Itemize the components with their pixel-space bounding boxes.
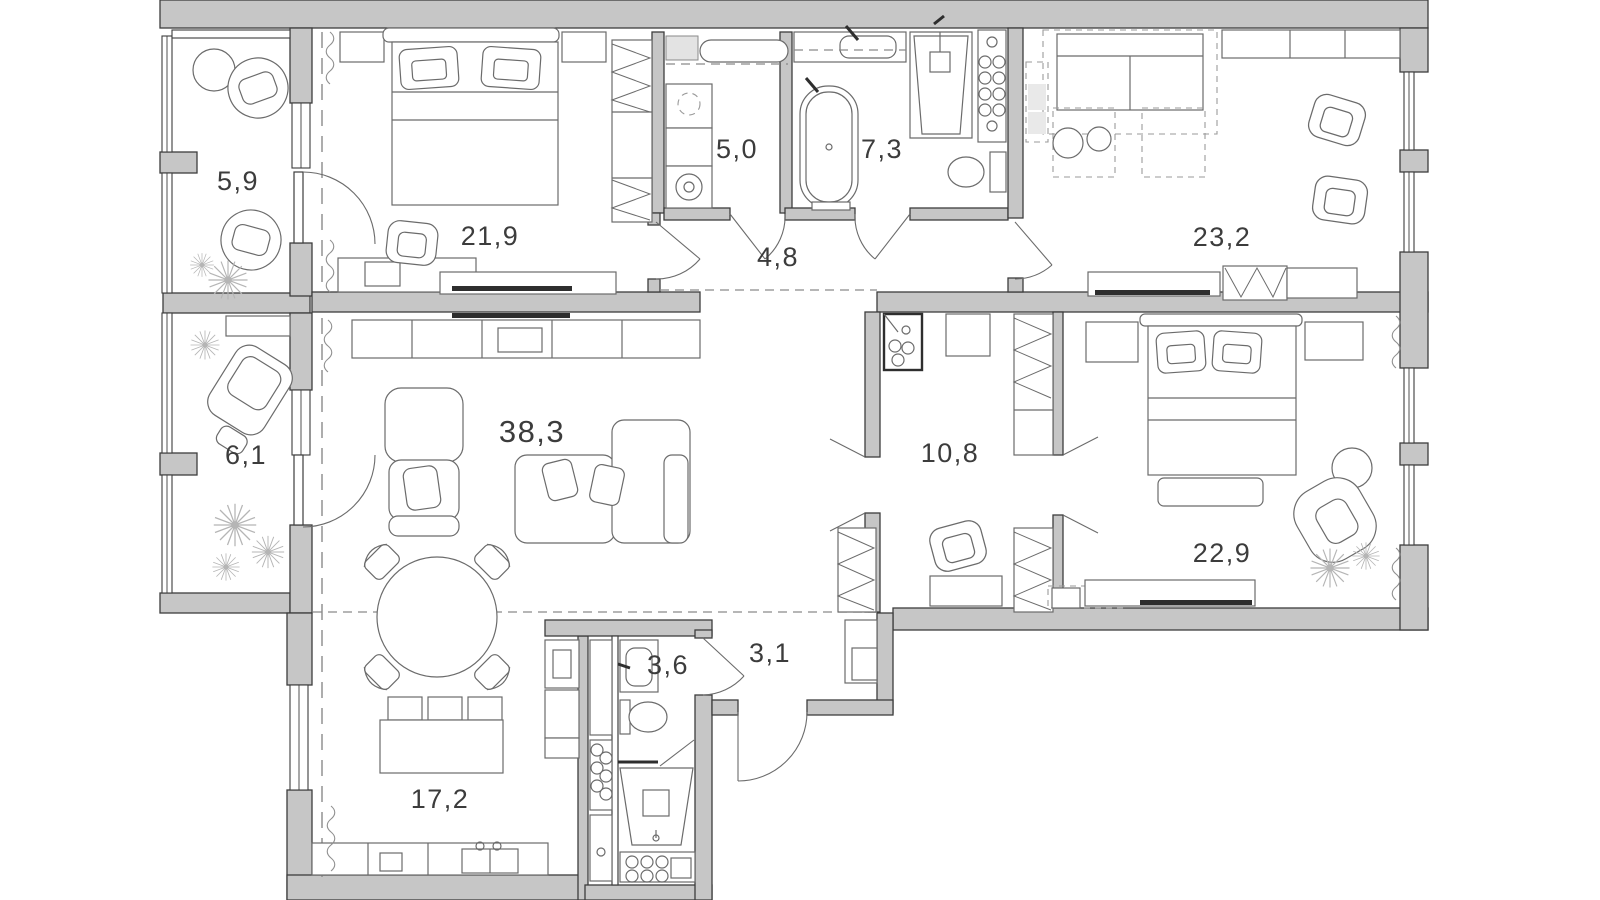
floor-plan-svg: 5,9 21,9 5,0 7,3 4,8 23,2 6,1 38,3 10,8 … bbox=[0, 0, 1600, 900]
kitchenette-sink bbox=[884, 314, 922, 370]
armchair bbox=[385, 388, 463, 462]
tall-cabinet bbox=[545, 738, 579, 758]
area-label-corridor: 4,8 bbox=[757, 242, 799, 272]
washing-machine bbox=[666, 166, 712, 208]
plant-icon bbox=[1310, 548, 1349, 587]
floor-plan-page: 5,9 21,9 5,0 7,3 4,8 23,2 6,1 38,3 10,8 … bbox=[0, 0, 1600, 900]
toilet bbox=[948, 157, 984, 187]
shower-head bbox=[643, 790, 669, 816]
nightstand bbox=[340, 32, 384, 62]
closet bbox=[590, 640, 612, 735]
area-label-living: 38,3 bbox=[499, 414, 565, 449]
stool bbox=[468, 697, 502, 720]
plant-icon bbox=[191, 331, 220, 360]
area-label-entry: 3,1 bbox=[749, 638, 791, 668]
tall-cabinet bbox=[545, 690, 579, 738]
bench bbox=[1158, 478, 1263, 506]
cabinet-row bbox=[1222, 30, 1400, 58]
cabinet bbox=[666, 128, 712, 166]
stool bbox=[388, 697, 422, 720]
area-label-lounge: 23,2 bbox=[1193, 222, 1252, 252]
stool bbox=[428, 697, 462, 720]
desk-chair bbox=[385, 220, 439, 267]
plant-icon bbox=[252, 536, 284, 568]
wardrobe bbox=[612, 40, 652, 222]
pouf bbox=[1087, 127, 1111, 151]
cabinet bbox=[666, 84, 712, 128]
oven bbox=[380, 853, 402, 871]
tv-icon bbox=[1140, 600, 1252, 605]
ironing-board bbox=[700, 40, 788, 62]
plant-icon bbox=[212, 553, 239, 580]
bath-mat bbox=[812, 202, 850, 210]
toilet bbox=[629, 702, 667, 732]
bed-headboard bbox=[383, 28, 559, 42]
area-label-kitchen: 17,2 bbox=[411, 784, 470, 814]
tv-icon bbox=[1095, 290, 1210, 295]
plant-icon bbox=[214, 504, 257, 547]
bed-headboard bbox=[1140, 314, 1302, 326]
desk bbox=[930, 576, 1002, 606]
area-label-balcony-top: 5,9 bbox=[217, 166, 259, 196]
area-label-hall: 10,8 bbox=[921, 438, 980, 468]
area-label-balcony-bottom: 6,1 bbox=[225, 440, 267, 470]
area-label-bathroom-small: 3,6 bbox=[647, 650, 689, 680]
cushion bbox=[402, 465, 442, 511]
dining-table bbox=[377, 557, 497, 677]
tv-icon bbox=[452, 286, 572, 291]
plant-icon bbox=[190, 253, 214, 277]
shower-head bbox=[930, 52, 950, 72]
side-table bbox=[1052, 588, 1080, 608]
area-label-bedroom-second: 22,9 bbox=[1193, 538, 1252, 568]
shelf bbox=[226, 316, 290, 336]
toilet-tank bbox=[990, 152, 1006, 192]
plant-icon bbox=[208, 260, 247, 299]
nightstand bbox=[562, 32, 606, 62]
area-label-bathroom-main: 7,3 bbox=[861, 134, 903, 164]
armchair bbox=[1311, 175, 1369, 226]
plant-icon bbox=[1352, 542, 1379, 569]
cabinet bbox=[946, 314, 990, 356]
desk-item bbox=[365, 262, 400, 286]
pouf bbox=[1053, 128, 1083, 158]
area-label-bedroom-main: 21,9 bbox=[461, 221, 520, 251]
area-label-laundry: 5,0 bbox=[716, 134, 758, 164]
kitchen-island bbox=[380, 720, 503, 773]
dresser bbox=[1305, 322, 1363, 360]
sink-basin bbox=[840, 36, 896, 58]
tv-icon bbox=[452, 313, 570, 318]
nightstand bbox=[1086, 322, 1138, 362]
cabinet bbox=[1287, 268, 1357, 298]
